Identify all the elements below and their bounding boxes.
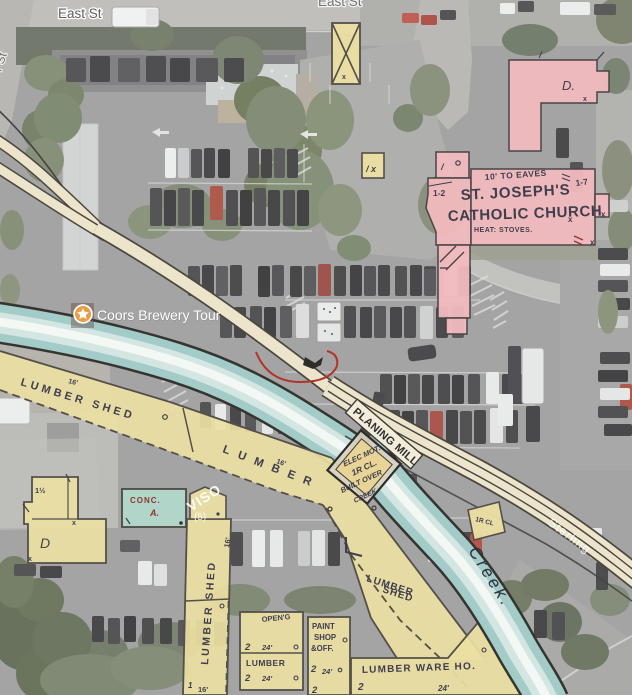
svg-text:A.: A. bbox=[149, 508, 159, 518]
svg-text:2: 2 bbox=[311, 685, 318, 695]
svg-text:D: D bbox=[40, 535, 50, 551]
svg-text:HEAT: STOVES.: HEAT: STOVES. bbox=[474, 227, 533, 234]
svg-text:(5): (5) bbox=[194, 512, 206, 523]
svg-text:2: 2 bbox=[244, 673, 251, 684]
svg-text:1½: 1½ bbox=[35, 486, 45, 495]
svg-text:x: x bbox=[72, 520, 76, 527]
svg-text:East St: East St bbox=[58, 6, 102, 21]
svg-text:1-2: 1-2 bbox=[433, 188, 446, 198]
svg-text:24': 24' bbox=[261, 674, 272, 683]
svg-text:x: x bbox=[601, 210, 606, 219]
svg-text:D.: D. bbox=[562, 78, 575, 93]
svg-text:x: x bbox=[342, 74, 346, 81]
svg-text:Coors Brewery Tour: Coors Brewery Tour bbox=[97, 307, 221, 323]
svg-text:x: x bbox=[590, 238, 595, 247]
svg-text:East St: East St bbox=[318, 0, 362, 9]
svg-text:1: 1 bbox=[188, 681, 193, 690]
svg-text:PAINT: PAINT bbox=[312, 622, 335, 631]
svg-text:2: 2 bbox=[310, 664, 317, 675]
svg-text:24': 24' bbox=[261, 643, 272, 652]
svg-text:24': 24' bbox=[437, 684, 450, 693]
svg-text:/ x: / x bbox=[365, 164, 377, 174]
svg-text:SHOP: SHOP bbox=[314, 633, 336, 642]
svg-text:16': 16' bbox=[198, 685, 208, 694]
svg-text:24': 24' bbox=[321, 667, 332, 676]
svg-text:&OFF.: &OFF. bbox=[311, 644, 334, 653]
svg-text:2: 2 bbox=[357, 682, 364, 693]
svg-text:x: x bbox=[28, 556, 32, 563]
svg-text:x: x bbox=[568, 215, 573, 224]
svg-text:CONC.: CONC. bbox=[130, 496, 161, 505]
svg-text:1-7: 1-7 bbox=[575, 176, 589, 188]
svg-text:16': 16' bbox=[222, 537, 233, 549]
svg-text:LUMBER: LUMBER bbox=[246, 658, 285, 668]
svg-text:2: 2 bbox=[244, 642, 251, 653]
svg-text:x: x bbox=[583, 96, 587, 103]
